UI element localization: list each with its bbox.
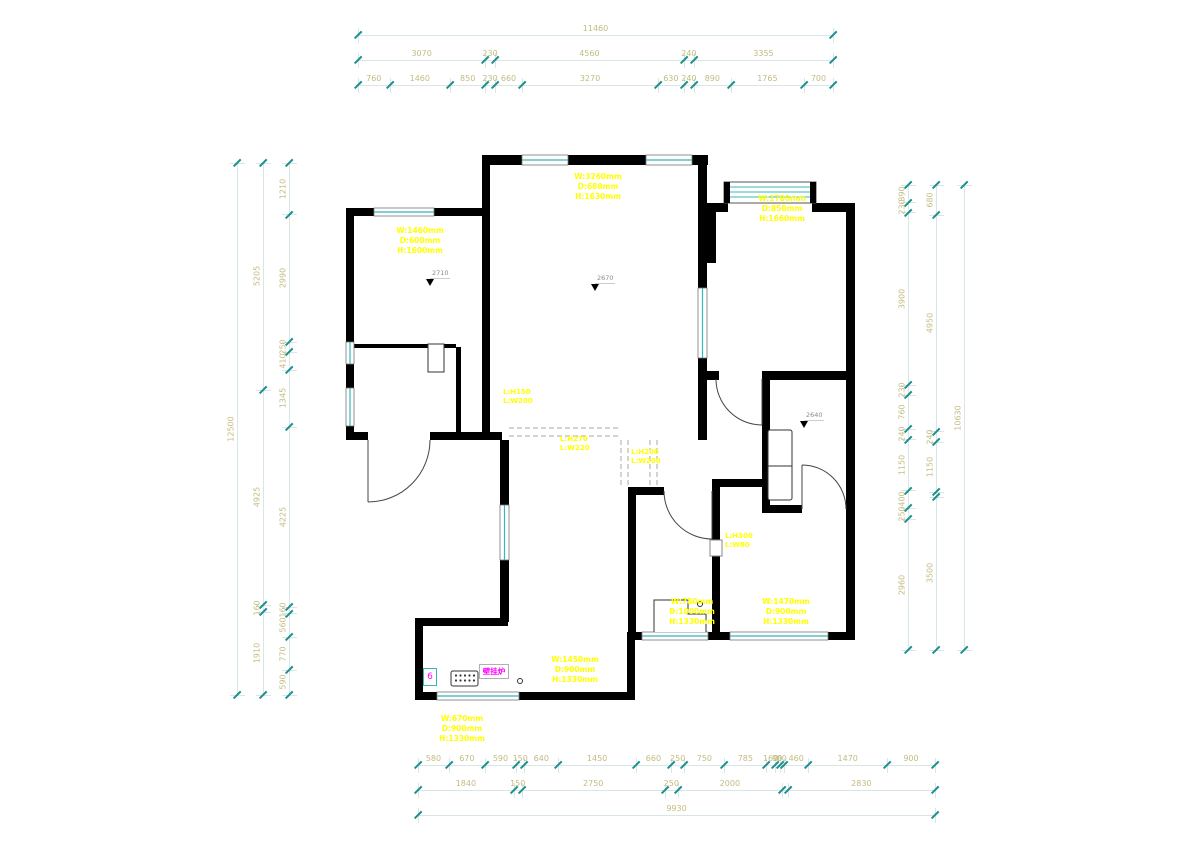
annotation-line: W:1780mm [758,194,806,204]
dim-label: 250 [670,754,685,763]
dim-label: 640 [534,754,549,763]
dim-ext [558,758,559,773]
dim-label: 1840 [456,779,476,788]
dim-label: 250 [279,339,288,354]
dim-label: 240 [681,74,696,83]
dim-line [358,60,833,61]
dim-label: 5205 [253,266,262,286]
dim-label: 4560 [579,49,599,58]
dim-label: 1345 [279,388,288,408]
annotation-line: D:600mm [396,236,444,246]
floorplan-canvas: 1146030702304560240335576014608502306603… [0,0,1200,851]
dim-label: 250 [664,779,679,788]
dim-ext [724,758,725,773]
dim-label: 760 [898,404,907,419]
dim-line [908,185,909,650]
lintel-label-lintel-3: L:H200L:W200 [631,448,661,466]
dim-ext [808,758,809,773]
lintel-label-lintel-2: L:H270L:W220 [560,435,590,453]
dim-label: 230 [482,74,497,83]
dim-line [964,185,965,650]
dim-label: 240 [898,426,907,441]
dim-label: 240 [926,429,935,444]
dim-label: 4225 [279,507,288,527]
dim-line [358,35,833,36]
dim-label: 3355 [753,49,773,58]
dim-label: 560 [279,618,288,633]
dim-label: 680 [926,192,935,207]
dim-label: 230 [898,382,907,397]
dim-label: 1765 [757,74,777,83]
dim-label: 1450 [587,754,607,763]
dim-label: 1150 [898,455,907,475]
annotation-line: H:1630mm [574,192,622,202]
annotation-line: W:1470mm [762,597,810,607]
window-annotation-room-top-right: W:1780mmD:850mmH:1660mm [758,194,806,224]
dim-label: 3070 [411,49,431,58]
dim-label: 580 [426,754,441,763]
dim-label: 230 [898,200,907,215]
dim-line [358,85,833,86]
dim-label: 2960 [898,574,907,594]
dim-label: 760 [366,74,381,83]
annotation-line: H:1600mm [396,246,444,256]
dim-label: 900 [903,754,918,763]
annotation-line: H:1660mm [758,214,806,224]
dim-label: 1150 [926,457,935,477]
dim-label: 12500 [227,416,236,441]
lintel-line: L:W220 [560,444,590,453]
lintel-line: L:W200 [503,397,533,406]
dim-label: 590 [279,675,288,690]
window-annotation-bedroom3: W:1470mmD:900mmH:1330mm [762,597,810,627]
lintel-line: L:H300 [725,532,753,541]
dim-label: 4950 [926,313,935,333]
annotation-line: D:900mm [762,607,810,617]
annotation-line: D:900mm [551,665,599,675]
window-annotation-kitchen-left: W:670mmD:900mmH:1330mm [439,714,485,744]
dim-label: 1470 [838,754,858,763]
dim-label: 1210 [279,179,288,199]
annotation-line: W:670mm [439,714,485,724]
dim-label: 750 [697,754,712,763]
dim-label: 250 [898,506,907,521]
elevation-value-elev-1: 2710 [432,269,449,277]
annotation-line: W:780mm [669,597,715,607]
window-annotation-bedroom1: W:1460mmD:600mmH:1600mm [396,226,444,256]
dim-line [936,185,937,650]
annotation-line: H:1330mm [439,734,485,744]
dim-ext [522,78,523,93]
dim-label: 230 [482,49,497,58]
dim-label: 3900 [898,289,907,309]
dim-label: 630 [663,74,678,83]
lintel-line: L:H150 [503,388,533,397]
annotation-line: W:1460mm [396,226,444,236]
dim-label: 9930 [666,804,686,813]
lintel-line: L:H200 [631,448,661,457]
dim-label: 150 [513,754,528,763]
dim-label: 240 [681,49,696,58]
dim-label: 660 [501,74,516,83]
dim-label: 670 [459,754,474,763]
lintel-line: L:H270 [560,435,590,444]
dim-label: 10630 [954,405,963,430]
dim-label: 3270 [580,74,600,83]
lintel-line: L:W80 [725,541,753,550]
annotation-line: H:1330mm [762,617,810,627]
annotation-overlay: 1146030702304560240335576014608502306603… [0,0,1200,851]
annotation-line: H:1330mm [551,675,599,685]
gas-meter-label: 6 [423,668,437,686]
annotation-line: D:900mm [439,724,485,734]
dim-line [263,163,264,695]
dim-label: 2750 [583,779,603,788]
annotation-line: H:1330mm [669,617,715,627]
elevation-value-elev-3: 2640 [806,411,823,419]
dim-label: 160 [279,602,288,617]
dim-label: 590 [493,754,508,763]
dim-line [418,765,935,766]
dim-label: 410 [279,353,288,368]
dim-label: 3500 [926,563,935,583]
dim-label: 770 [279,646,288,661]
dim-label: 1460 [410,74,430,83]
dim-line [237,163,238,695]
annotation-line: D:850mm [758,204,806,214]
dim-label: 2990 [279,268,288,288]
window-annotation-living: W:3260mmD:680mmH:1630mm [574,172,622,202]
dim-line [289,163,290,695]
window-annotation-bedroom2: W:780mmD:1000mmH:1330mm [669,597,715,627]
annotation-line: D:1000mm [669,607,715,617]
window-annotation-kitchen: W:1450mmD:900mmH:1330mm [551,655,599,685]
lintel-label-lintel-4: L:H300L:W80 [725,532,753,550]
boiler-label: 壁挂炉 [479,664,509,679]
dim-label: 2830 [851,779,871,788]
dim-label: 400 [898,491,907,506]
dim-line [418,815,935,816]
dim-label: 160 [253,601,262,616]
lintel-line: L:W200 [631,457,661,466]
dim-label: 80 [777,754,787,763]
dim-label: 850 [460,74,475,83]
annotation-line: W:1450mm [551,655,599,665]
lintel-label-lintel-1: L:H150L:W200 [503,388,533,406]
dim-label: 4925 [253,487,262,507]
annotation-line: D:680mm [574,182,622,192]
dim-label: 2000 [720,779,740,788]
dim-label: 1910 [253,643,262,663]
elevation-value-elev-2: 2670 [597,274,614,282]
dim-label: 11460 [583,24,608,33]
dim-label: 890 [705,74,720,83]
dim-label: 660 [646,754,661,763]
dim-label: 460 [789,754,804,763]
dim-label: 150 [510,779,525,788]
dim-label: 785 [738,754,753,763]
annotation-line: W:3260mm [574,172,622,182]
dim-label: 700 [811,74,826,83]
